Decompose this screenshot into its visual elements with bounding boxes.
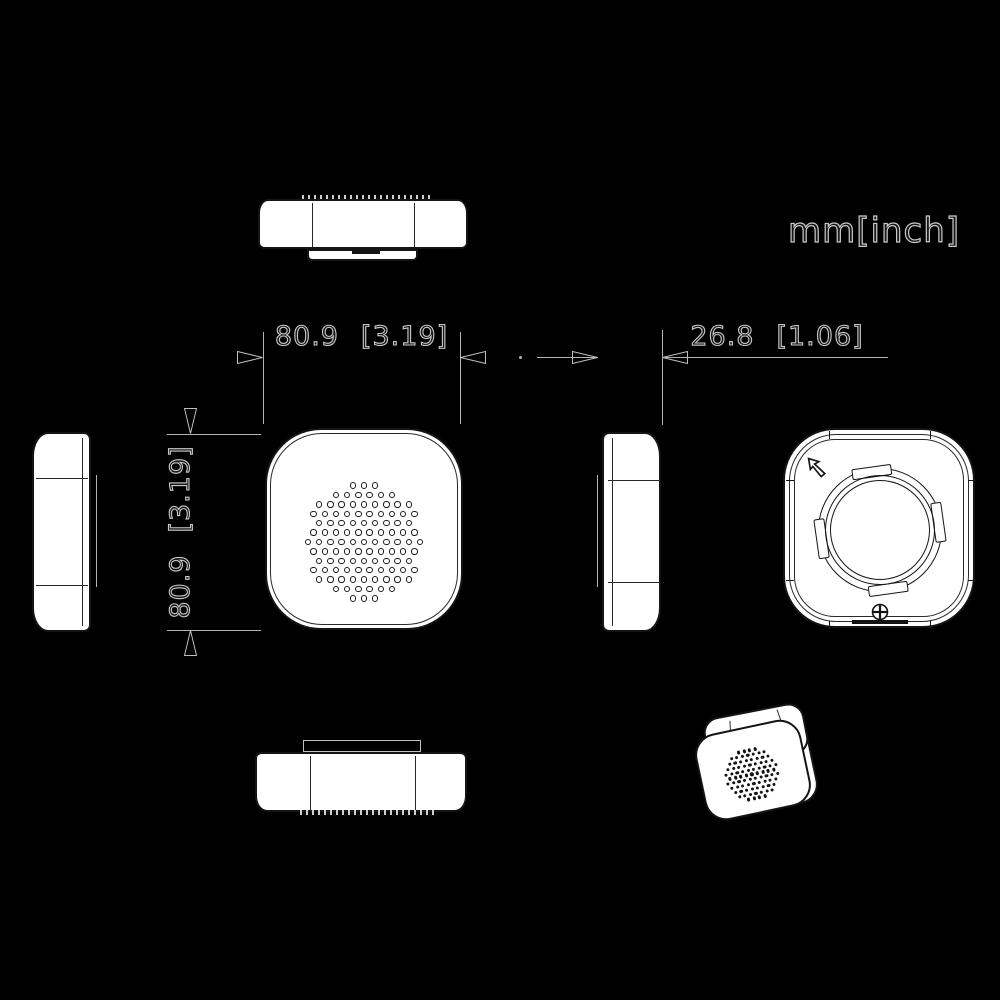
- speaker-hole: [333, 567, 339, 573]
- speaker-hole: [753, 762, 757, 766]
- height-arrow-bottom: [184, 630, 197, 656]
- speaker-hole: [750, 758, 754, 762]
- speaker-hole: [361, 520, 367, 526]
- speaker-hole: [338, 558, 344, 564]
- speaker-hole: [355, 567, 361, 573]
- speaker-hole: [344, 548, 350, 554]
- speaker-hole: [389, 548, 395, 554]
- speaker-hole: [305, 539, 311, 545]
- speaker-hole: [366, 511, 372, 517]
- depth-dimension-label: 26.8 [1.06]: [666, 322, 888, 352]
- speaker-hole: [338, 539, 344, 545]
- speaker-hole: [372, 539, 378, 545]
- speaker-hole: [333, 529, 339, 535]
- speaker-hole: [378, 529, 384, 535]
- speaker-hole: [743, 779, 747, 783]
- speaker-hole: [752, 796, 756, 800]
- speaker-hole: [378, 511, 384, 517]
- speaker-hole: [761, 755, 765, 759]
- height-arrow-top: [184, 408, 197, 434]
- speaker-hole: [772, 768, 776, 772]
- speaker-hole: [361, 539, 367, 545]
- speaker-hole: [372, 558, 378, 564]
- back-view: [783, 428, 975, 628]
- speaker-hole: [757, 781, 761, 785]
- speaker-hole: [322, 567, 328, 573]
- dimension-dot: [519, 356, 522, 359]
- speaker-hole: [763, 794, 767, 798]
- speaker-hole: [768, 764, 772, 768]
- speaker-hole: [735, 771, 739, 775]
- speaker-hole: [350, 576, 356, 582]
- top-view-edge-line: [312, 203, 313, 247]
- speaker-hole: [770, 773, 774, 777]
- speaker-hole: [310, 548, 316, 554]
- right-view-mount-edge: [612, 438, 613, 626]
- speaker-hole: [726, 768, 730, 772]
- speaker-hole: [344, 511, 350, 517]
- speaker-hole: [338, 576, 344, 582]
- bottom-view: [255, 752, 467, 812]
- speaker-hole: [728, 777, 732, 781]
- depth-extension-line: [662, 330, 663, 425]
- speaker-hole: [355, 492, 361, 498]
- speaker-hole: [361, 558, 367, 564]
- width-arrow-right: [460, 351, 486, 364]
- speaker-hole: [770, 758, 774, 762]
- speaker-hole: [768, 778, 772, 782]
- front-view: [265, 428, 463, 630]
- speaker-hole: [400, 529, 406, 535]
- width-arrow-left: [237, 351, 263, 364]
- speaker-hole: [344, 567, 350, 573]
- speaker-hole: [765, 789, 769, 793]
- speaker-hole: [766, 754, 770, 758]
- speaker-hole: [737, 795, 741, 799]
- front-speaker-grille: [267, 430, 461, 628]
- speaker-hole: [747, 798, 751, 802]
- speaker-hole: [389, 567, 395, 573]
- top-view-connector-slot: [352, 250, 380, 254]
- speaker-hole: [724, 773, 728, 777]
- speaker-hole: [394, 558, 400, 564]
- speaker-hole: [361, 501, 367, 507]
- iso-speaker-grille: [693, 718, 812, 822]
- speaker-hole: [350, 501, 356, 507]
- speaker-hole: [746, 754, 750, 758]
- mount-ring-inner-circle: [830, 480, 930, 580]
- speaker-hole: [378, 586, 384, 592]
- speaker-hole: [333, 511, 339, 517]
- speaker-hole: [759, 761, 763, 765]
- speaker-hole: [372, 520, 378, 526]
- speaker-hole: [378, 548, 384, 554]
- speaker-hole: [733, 761, 737, 765]
- isometric-view: [697, 710, 819, 820]
- speaker-hole: [737, 765, 741, 769]
- speaker-hole: [750, 787, 754, 791]
- screw-icon: [871, 603, 889, 621]
- speaker-hole: [327, 576, 333, 582]
- speaker-hole: [372, 482, 378, 488]
- speaker-hole: [394, 576, 400, 582]
- speaker-hole: [758, 795, 762, 799]
- speaker-hole: [327, 539, 333, 545]
- speaker-hole: [739, 775, 743, 779]
- speaker-hole: [728, 762, 732, 766]
- speaker-hole: [394, 539, 400, 545]
- speaker-hole: [751, 752, 755, 756]
- right-side-view: [602, 432, 661, 632]
- speaker-hole: [767, 783, 771, 787]
- top-view-edge-line: [414, 203, 415, 247]
- speaker-hole: [338, 520, 344, 526]
- speaker-hole: [772, 782, 776, 786]
- depth-arrow-left: [572, 351, 598, 364]
- right-view-seam-bottom: [608, 582, 660, 583]
- speaker-hole: [383, 501, 389, 507]
- speaker-hole: [316, 539, 322, 545]
- speaker-hole: [316, 576, 322, 582]
- speaker-hole: [776, 772, 780, 776]
- speaker-hole: [383, 520, 389, 526]
- speaker-hole: [770, 788, 774, 792]
- speaker-hole: [417, 539, 423, 545]
- height-mm-value: 80.9: [165, 555, 196, 619]
- speaker-hole: [763, 779, 767, 783]
- speaker-hole: [753, 747, 757, 751]
- speaker-hole: [383, 539, 389, 545]
- left-view-seam-top: [36, 478, 88, 479]
- speaker-hole: [350, 482, 356, 488]
- left-view-seam-bottom: [36, 585, 88, 586]
- right-view-seam-top: [608, 480, 660, 481]
- speaker-hole: [327, 520, 333, 526]
- speaker-hole: [344, 586, 350, 592]
- speaker-hole: [394, 501, 400, 507]
- width-dimension-label: 80.9 [3.19]: [263, 322, 460, 352]
- speaker-hole: [748, 763, 752, 767]
- speaker-hole: [389, 529, 395, 535]
- mount-direction-arrow-icon: [805, 455, 829, 479]
- speaker-hole: [372, 595, 378, 601]
- speaker-hole: [726, 782, 730, 786]
- speaker-hole: [743, 793, 747, 797]
- speaker-hole: [400, 511, 406, 517]
- speaker-hole: [310, 567, 316, 573]
- speaker-hole: [411, 511, 417, 517]
- speaker-hole: [746, 783, 750, 787]
- speaker-hole: [759, 790, 763, 794]
- speaker-hole: [729, 757, 733, 761]
- speaker-hole: [394, 520, 400, 526]
- speaker-hole: [366, 567, 372, 573]
- speaker-hole: [761, 785, 765, 789]
- speaker-hole: [350, 595, 356, 601]
- speaker-hole: [763, 765, 767, 769]
- speaker-hole: [366, 492, 372, 498]
- speaker-hole: [378, 567, 384, 573]
- top-view: [258, 199, 468, 249]
- speaker-hole: [366, 586, 372, 592]
- speaker-hole: [316, 520, 322, 526]
- speaker-hole: [733, 776, 737, 780]
- speaker-hole: [764, 759, 768, 763]
- speaker-hole: [759, 775, 763, 779]
- speaker-hole: [372, 501, 378, 507]
- speaker-hole: [378, 492, 384, 498]
- speaker-hole: [389, 511, 395, 517]
- speaker-hole: [406, 520, 412, 526]
- speaker-hole: [761, 770, 765, 774]
- bottom-view-mount-plate: [303, 740, 421, 752]
- speaker-hole: [766, 769, 770, 773]
- depth-dimension-line-right: [662, 357, 888, 358]
- speaker-hole: [406, 576, 412, 582]
- speaker-hole: [739, 760, 743, 764]
- speaker-hole: [400, 548, 406, 554]
- bottom-view-edge-line: [415, 756, 416, 810]
- speaker-hole: [411, 548, 417, 554]
- speaker-hole: [338, 501, 344, 507]
- speaker-hole: [750, 772, 754, 776]
- speaker-hole: [735, 756, 739, 760]
- speaker-hole: [730, 786, 734, 790]
- speaker-hole: [383, 576, 389, 582]
- speaker-hole: [732, 781, 736, 785]
- speaker-hole: [361, 482, 367, 488]
- height-inch-value: [3.19]: [165, 445, 196, 532]
- speaker-hole: [754, 776, 758, 780]
- speaker-hole: [748, 792, 752, 796]
- speaker-hole: [355, 529, 361, 535]
- speaker-hole: [350, 520, 356, 526]
- speaker-hole: [774, 777, 778, 781]
- speaker-hole: [752, 767, 756, 771]
- speaker-hole: [361, 595, 367, 601]
- speaker-hole: [355, 548, 361, 554]
- speaker-hole: [361, 576, 367, 582]
- speaker-hole: [755, 756, 759, 760]
- bottom-view-edge-line: [310, 756, 311, 810]
- speaker-hole: [756, 786, 760, 790]
- speaker-hole: [742, 764, 746, 768]
- speaker-hole: [344, 529, 350, 535]
- speaker-hole: [741, 769, 745, 773]
- speaker-hole: [746, 768, 750, 772]
- speaker-hole: [730, 772, 734, 776]
- speaker-hole: [310, 511, 316, 517]
- speaker-hole: [744, 759, 748, 763]
- speaker-hole: [754, 791, 758, 795]
- speaker-hole: [737, 780, 741, 784]
- speaker-hole: [400, 567, 406, 573]
- speaker-hole: [762, 750, 766, 754]
- speaker-hole: [411, 529, 417, 535]
- speaker-hole: [757, 751, 761, 755]
- speaker-hole: [765, 774, 769, 778]
- speaker-hole: [740, 755, 744, 759]
- speaker-hole: [355, 586, 361, 592]
- bottom-view-vent-serrations: [300, 810, 436, 815]
- speaker-hole: [327, 558, 333, 564]
- speaker-hole: [411, 567, 417, 573]
- speaker-hole: [322, 548, 328, 554]
- width-extension-line-right: [460, 332, 461, 424]
- depth-mm-value: 26.8: [690, 321, 754, 352]
- speaker-hole: [322, 529, 328, 535]
- left-view-mount-plate-edge: [96, 475, 97, 587]
- speaker-hole: [744, 773, 748, 777]
- speaker-hole: [735, 785, 739, 789]
- left-side-view: [32, 432, 91, 632]
- left-view-mount-edge: [82, 438, 83, 626]
- speaker-hole: [734, 790, 738, 794]
- speaker-hole: [366, 548, 372, 554]
- speaker-hole: [344, 492, 350, 498]
- speaker-hole: [774, 762, 778, 766]
- speaker-hole: [406, 558, 412, 564]
- speaker-hole: [333, 492, 339, 498]
- height-dimension-label: 80.9 [3.19]: [166, 432, 196, 632]
- speaker-hole: [333, 548, 339, 554]
- speaker-hole: [745, 788, 749, 792]
- speaker-hole: [316, 501, 322, 507]
- depth-inch-value: [1.06]: [776, 321, 863, 352]
- speaker-hole: [366, 529, 372, 535]
- back-view-bottom-slot: [852, 620, 908, 624]
- speaker-hole: [748, 748, 752, 752]
- speaker-hole: [316, 558, 322, 564]
- speaker-hole: [327, 501, 333, 507]
- speaker-hole: [755, 771, 759, 775]
- speaker-hole: [742, 749, 746, 753]
- speaker-hole: [748, 778, 752, 782]
- speaker-hole: [389, 586, 395, 592]
- speaker-hole: [372, 576, 378, 582]
- speaker-hole: [322, 511, 328, 517]
- dimension-drawing: mm[inch]: [0, 0, 1000, 1000]
- speaker-hole: [310, 529, 316, 535]
- speaker-hole: [355, 511, 361, 517]
- speaker-hole: [333, 586, 339, 592]
- speaker-hole: [737, 751, 741, 755]
- speaker-hole: [406, 501, 412, 507]
- speaker-hole: [731, 766, 735, 770]
- speaker-hole: [406, 539, 412, 545]
- units-label: mm[inch]: [788, 210, 960, 252]
- right-view-mount-plate-edge: [597, 475, 598, 587]
- speaker-hole: [383, 558, 389, 564]
- width-mm-value: 80.9: [275, 321, 339, 352]
- speaker-hole: [757, 766, 761, 770]
- speaker-hole: [739, 789, 743, 793]
- speaker-hole: [350, 558, 356, 564]
- speaker-hole: [389, 492, 395, 498]
- speaker-hole: [741, 784, 745, 788]
- speaker-hole: [350, 539, 356, 545]
- width-inch-value: [3.19]: [361, 321, 448, 352]
- speaker-hole: [752, 782, 756, 786]
